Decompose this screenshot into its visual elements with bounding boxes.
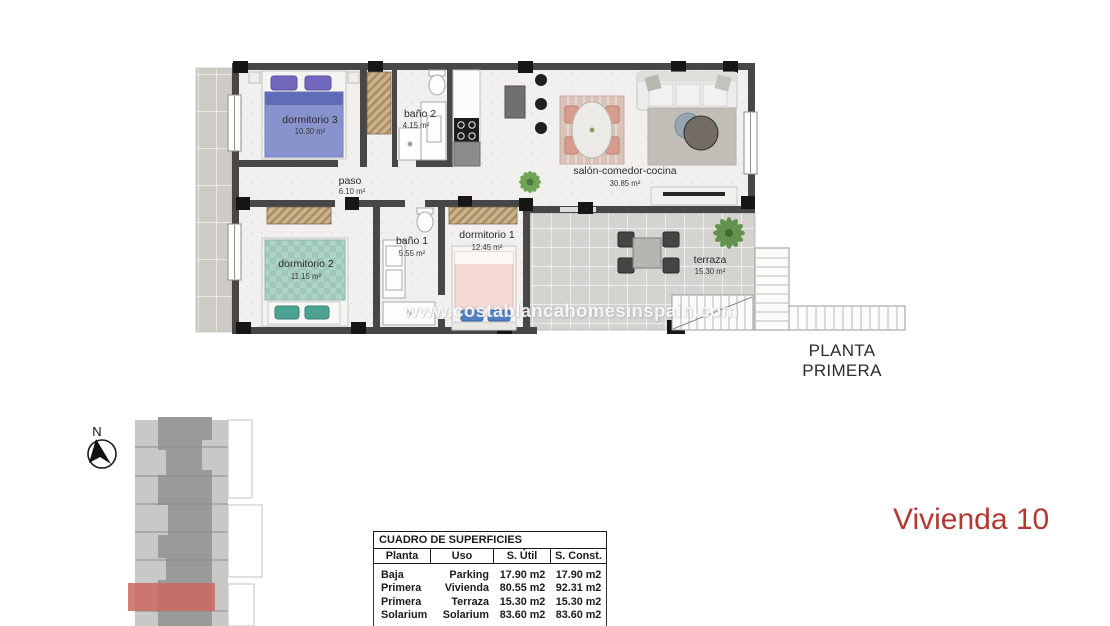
sofa [637, 72, 737, 110]
exterior-walkway [196, 68, 232, 332]
watermark: www.costablancahomesinspain.com [404, 300, 739, 322]
svg-text:12.45 m²: 12.45 m² [472, 243, 503, 252]
cooktop-icon [454, 118, 479, 142]
surfaces-table-title: CUADRO DE SUPERFICIES [373, 531, 607, 549]
room-label: baño 2 [404, 108, 436, 120]
living-rug-and-tables [648, 108, 736, 165]
svg-text:11.15 m²: 11.15 m² [291, 272, 322, 281]
room-label: paso [339, 175, 362, 187]
table-row: Primera Vivienda 80.55 m2 92.31 m2 [374, 582, 606, 595]
bar-stools [535, 74, 547, 134]
bed-dormitorio-2 [262, 238, 348, 326]
svg-text:4.15 m²: 4.15 m² [403, 121, 430, 130]
table-row: Baja Parking 17.90 m2 17.90 m2 [374, 569, 606, 582]
room-label: salón-comedor-cocina [573, 165, 676, 177]
svg-text:5.55 m²: 5.55 m² [399, 249, 426, 258]
svg-text:10.30 m²: 10.30 m² [295, 127, 326, 136]
unit-label: Vivienda 10 [893, 503, 1049, 537]
header-uso: Uso [431, 549, 494, 563]
svg-text:15.30 m²: 15.30 m² [695, 267, 726, 276]
surfaces-table-header: Planta Uso S. Útil S. Const. [373, 549, 607, 564]
header-util: S. Útil [494, 549, 551, 563]
highlighted-unit [128, 583, 215, 611]
tv-sideboard [651, 187, 737, 205]
room-label: baño 1 [396, 235, 428, 247]
kitchen-island [505, 86, 525, 118]
room-label: dormitorio 1 [459, 229, 515, 241]
room-label: terraza [694, 254, 727, 266]
header-const: S. Const. [551, 549, 606, 563]
surfaces-table: CUADRO DE SUPERFICIES Planta Uso S. Útil… [373, 531, 607, 626]
room-label: dormitorio 2 [278, 258, 334, 270]
brochure-page: dormitorio 3 10.30 m² baño 2 4.15 m² pas… [0, 0, 1110, 626]
table-row: Primera Terraza 15.30 m2 15.30 m2 [374, 596, 606, 609]
header-planta: Planta [374, 549, 431, 563]
table-row: Solarium Solarium 83.60 m2 83.60 m2 [374, 609, 606, 622]
svg-text:N: N [92, 424, 101, 439]
site-plan [128, 417, 262, 626]
plan-caption: PLANTA PRIMERA [772, 341, 912, 381]
svg-text:30.85 m²: 30.85 m² [610, 179, 641, 188]
dining-set [560, 96, 624, 164]
north-arrow-icon: N [88, 424, 116, 468]
surfaces-table-body: Baja Parking 17.90 m2 17.90 m2 Primera V… [373, 564, 607, 626]
svg-text:6.10 m²: 6.10 m² [339, 187, 366, 196]
room-label: dormitorio 3 [282, 114, 338, 126]
